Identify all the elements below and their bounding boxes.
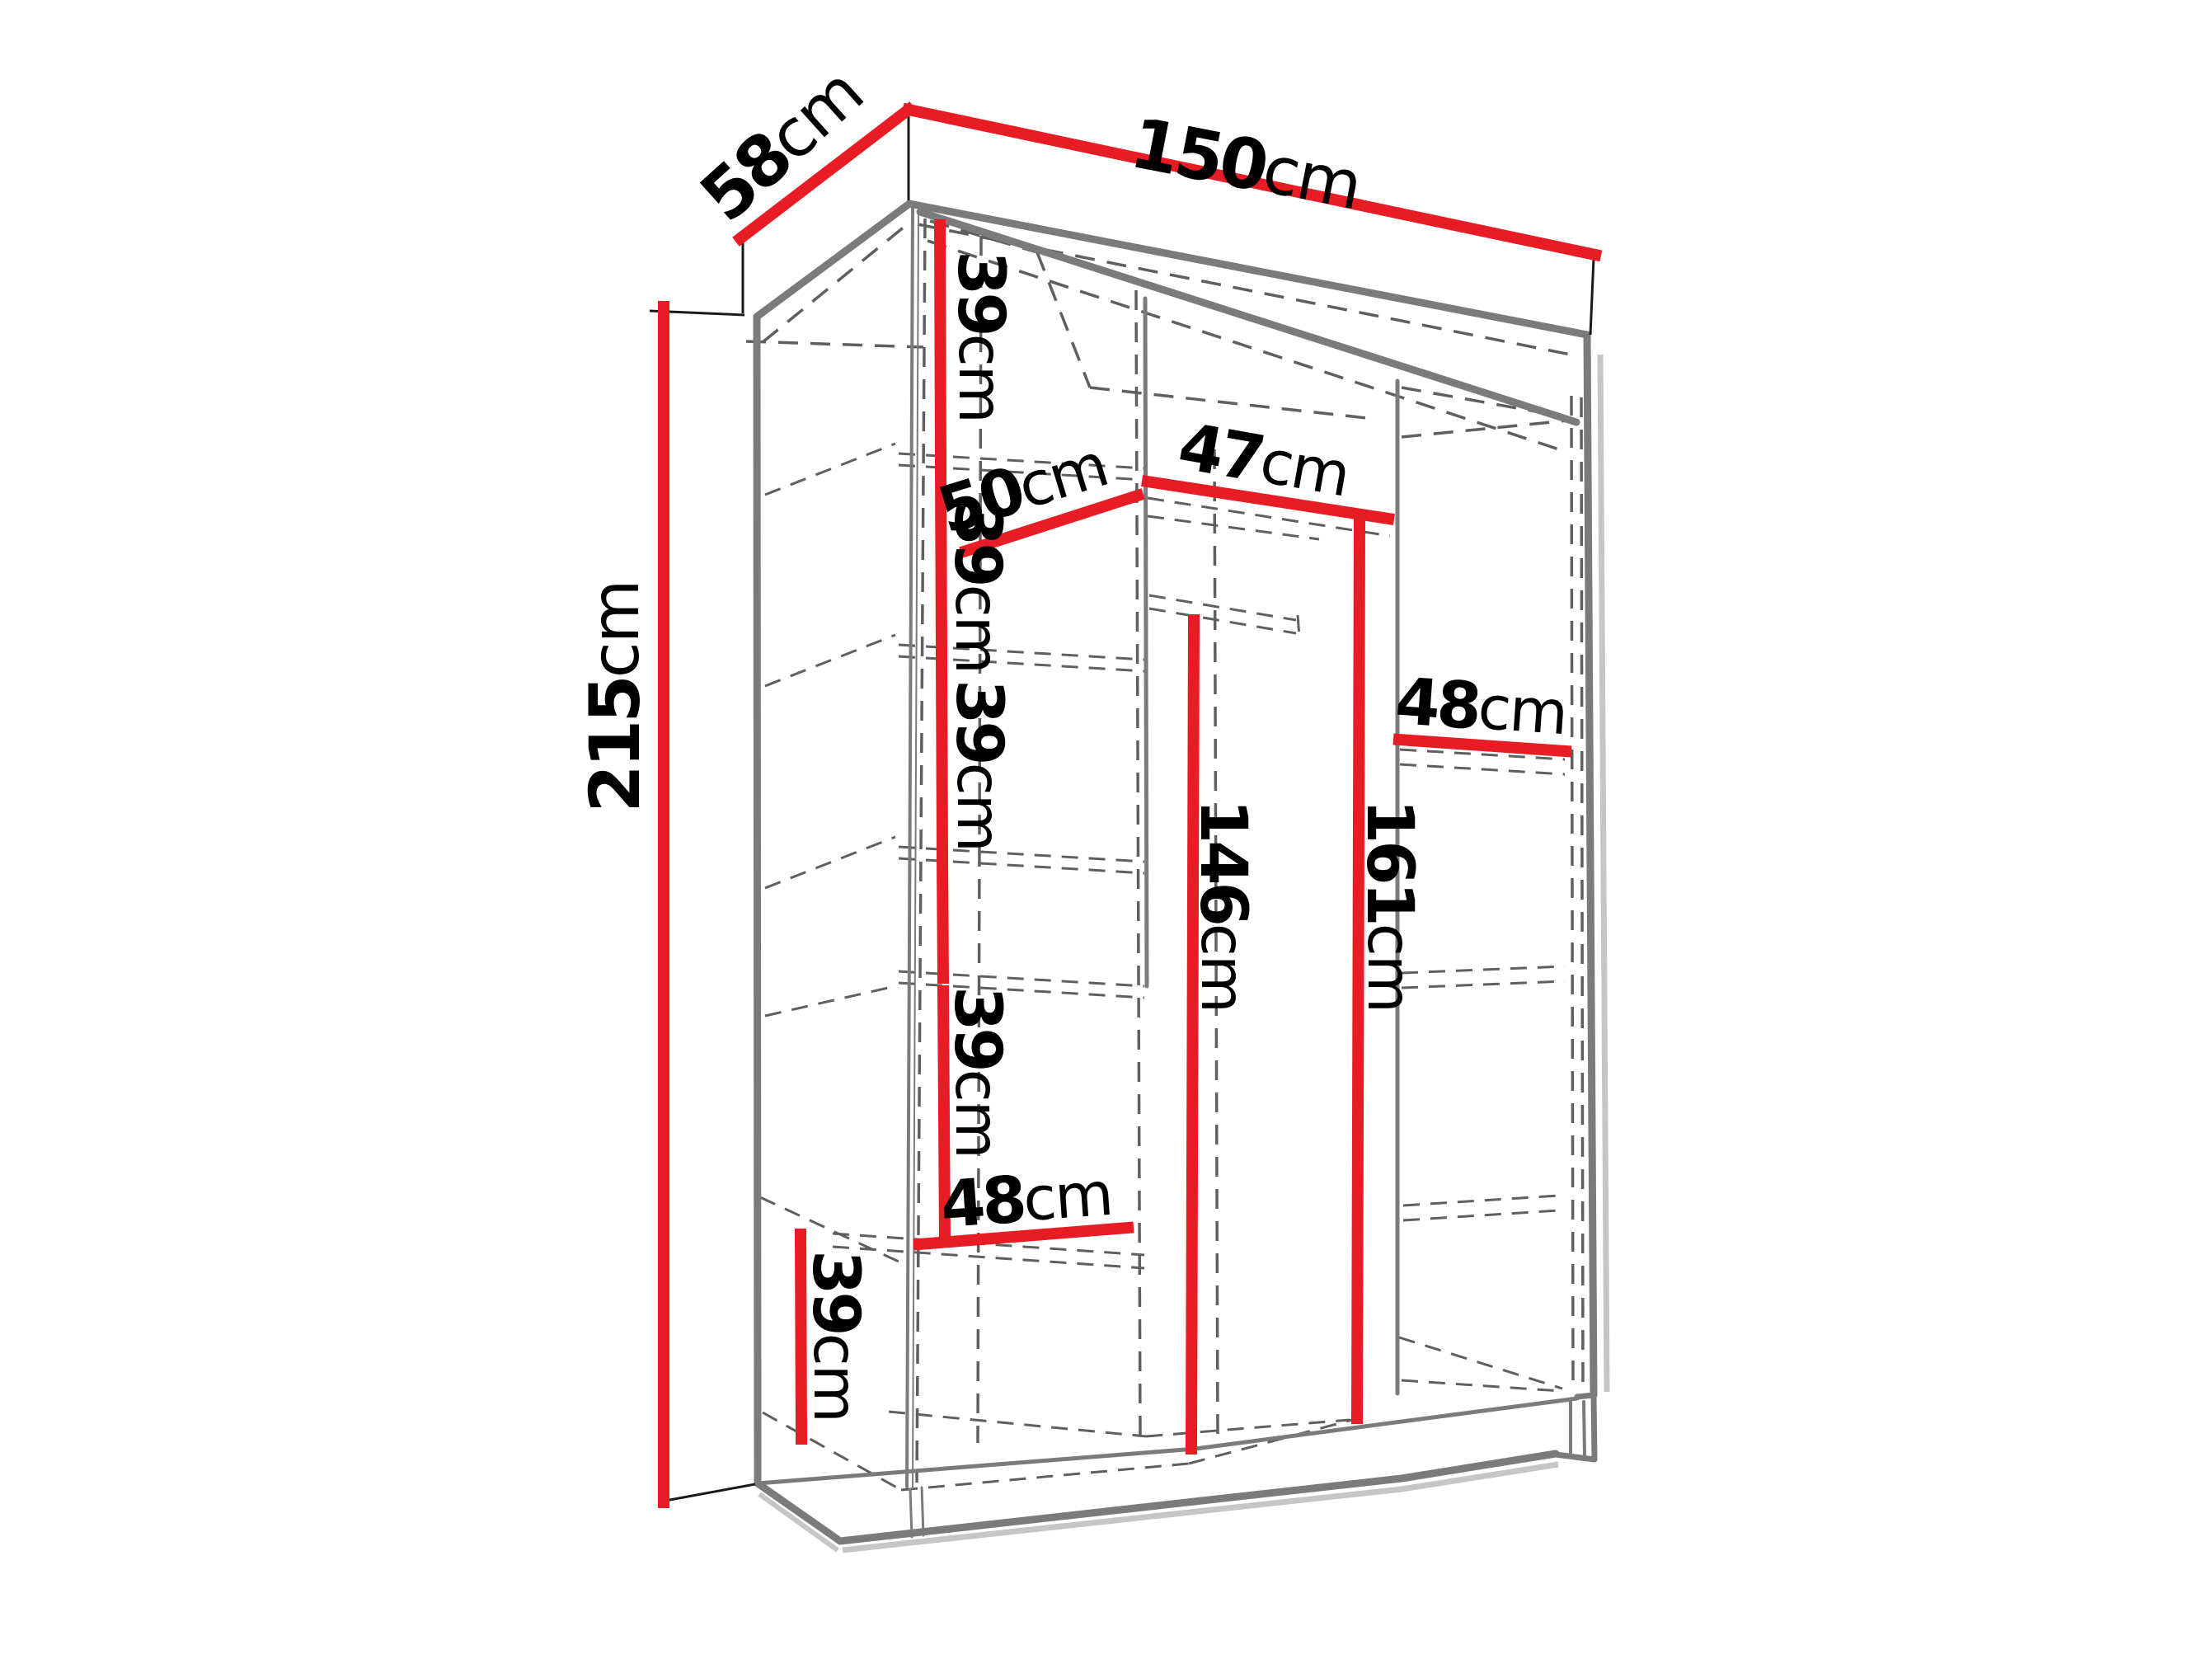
height-bottom-witness: [665, 1484, 755, 1501]
shadow-bottom-edge: [843, 1464, 1558, 1550]
front-left-edge: [757, 317, 758, 1483]
witness-lines: [650, 113, 1594, 1501]
shadow-lines: [759, 355, 1607, 1550]
shadow-left-plinth: [759, 1494, 838, 1550]
floor-right-dashed: [1399, 1337, 1562, 1391]
label-hang-161: 161cm: [1352, 799, 1426, 1012]
label-bottom-shelf-39: 39cm: [798, 1250, 872, 1422]
right-foot-detail: [1571, 1402, 1585, 1456]
dim-line-hang-146: [1191, 620, 1194, 1449]
right-foot-outline: [1556, 1395, 1594, 1459]
back-right-corner-dashed-2: [1581, 397, 1583, 1393]
label-right-width-48: 48cm: [1393, 665, 1570, 750]
right-shelf-2-dashed: [1402, 966, 1565, 988]
label-shelf-4: 39cm: [940, 986, 1014, 1158]
right-edge: [1587, 335, 1594, 1395]
label-shelf-3: 39cm: [942, 679, 1016, 851]
hanging-rail-dashed: [1149, 595, 1299, 637]
wardrobe-diagram: 150cm 58cm 215cm 39cm 39cm 39cm 39cm 39c…: [0, 0, 2212, 1659]
back-right-corner-dashed-1: [1571, 396, 1573, 1392]
top-panel-front-hidden: [746, 341, 923, 347]
page: { "diagram": "wardrobe-dimension-drawing…: [0, 0, 2212, 1659]
right-shelf-3-dashed: [1403, 1196, 1558, 1220]
floor-back-dashed: [889, 1412, 1350, 1436]
label-width-150: 150cm: [1125, 102, 1368, 226]
side-panel-top-edge: [757, 204, 909, 317]
label-height-215: 215cm: [575, 580, 655, 812]
floor-front-dashed: [763, 1412, 1352, 1490]
width-right-witness: [1590, 258, 1594, 335]
shadow-right-edge: [1600, 355, 1607, 1392]
label-hang-146: 146cm: [1186, 799, 1260, 1012]
center-partition-edge: [1145, 298, 1147, 986]
wardrobe-outline: [757, 204, 1594, 1541]
top-panel-side-hidden: [763, 226, 905, 342]
label-shelf-1: 39cm: [943, 251, 1017, 422]
dim-line-shelf-gap: [942, 860, 943, 978]
dim-line-shelf-1: [940, 225, 941, 458]
label-bottom-width-48: 48cm: [938, 1157, 1115, 1243]
plinth-left-cap: [758, 1483, 840, 1541]
